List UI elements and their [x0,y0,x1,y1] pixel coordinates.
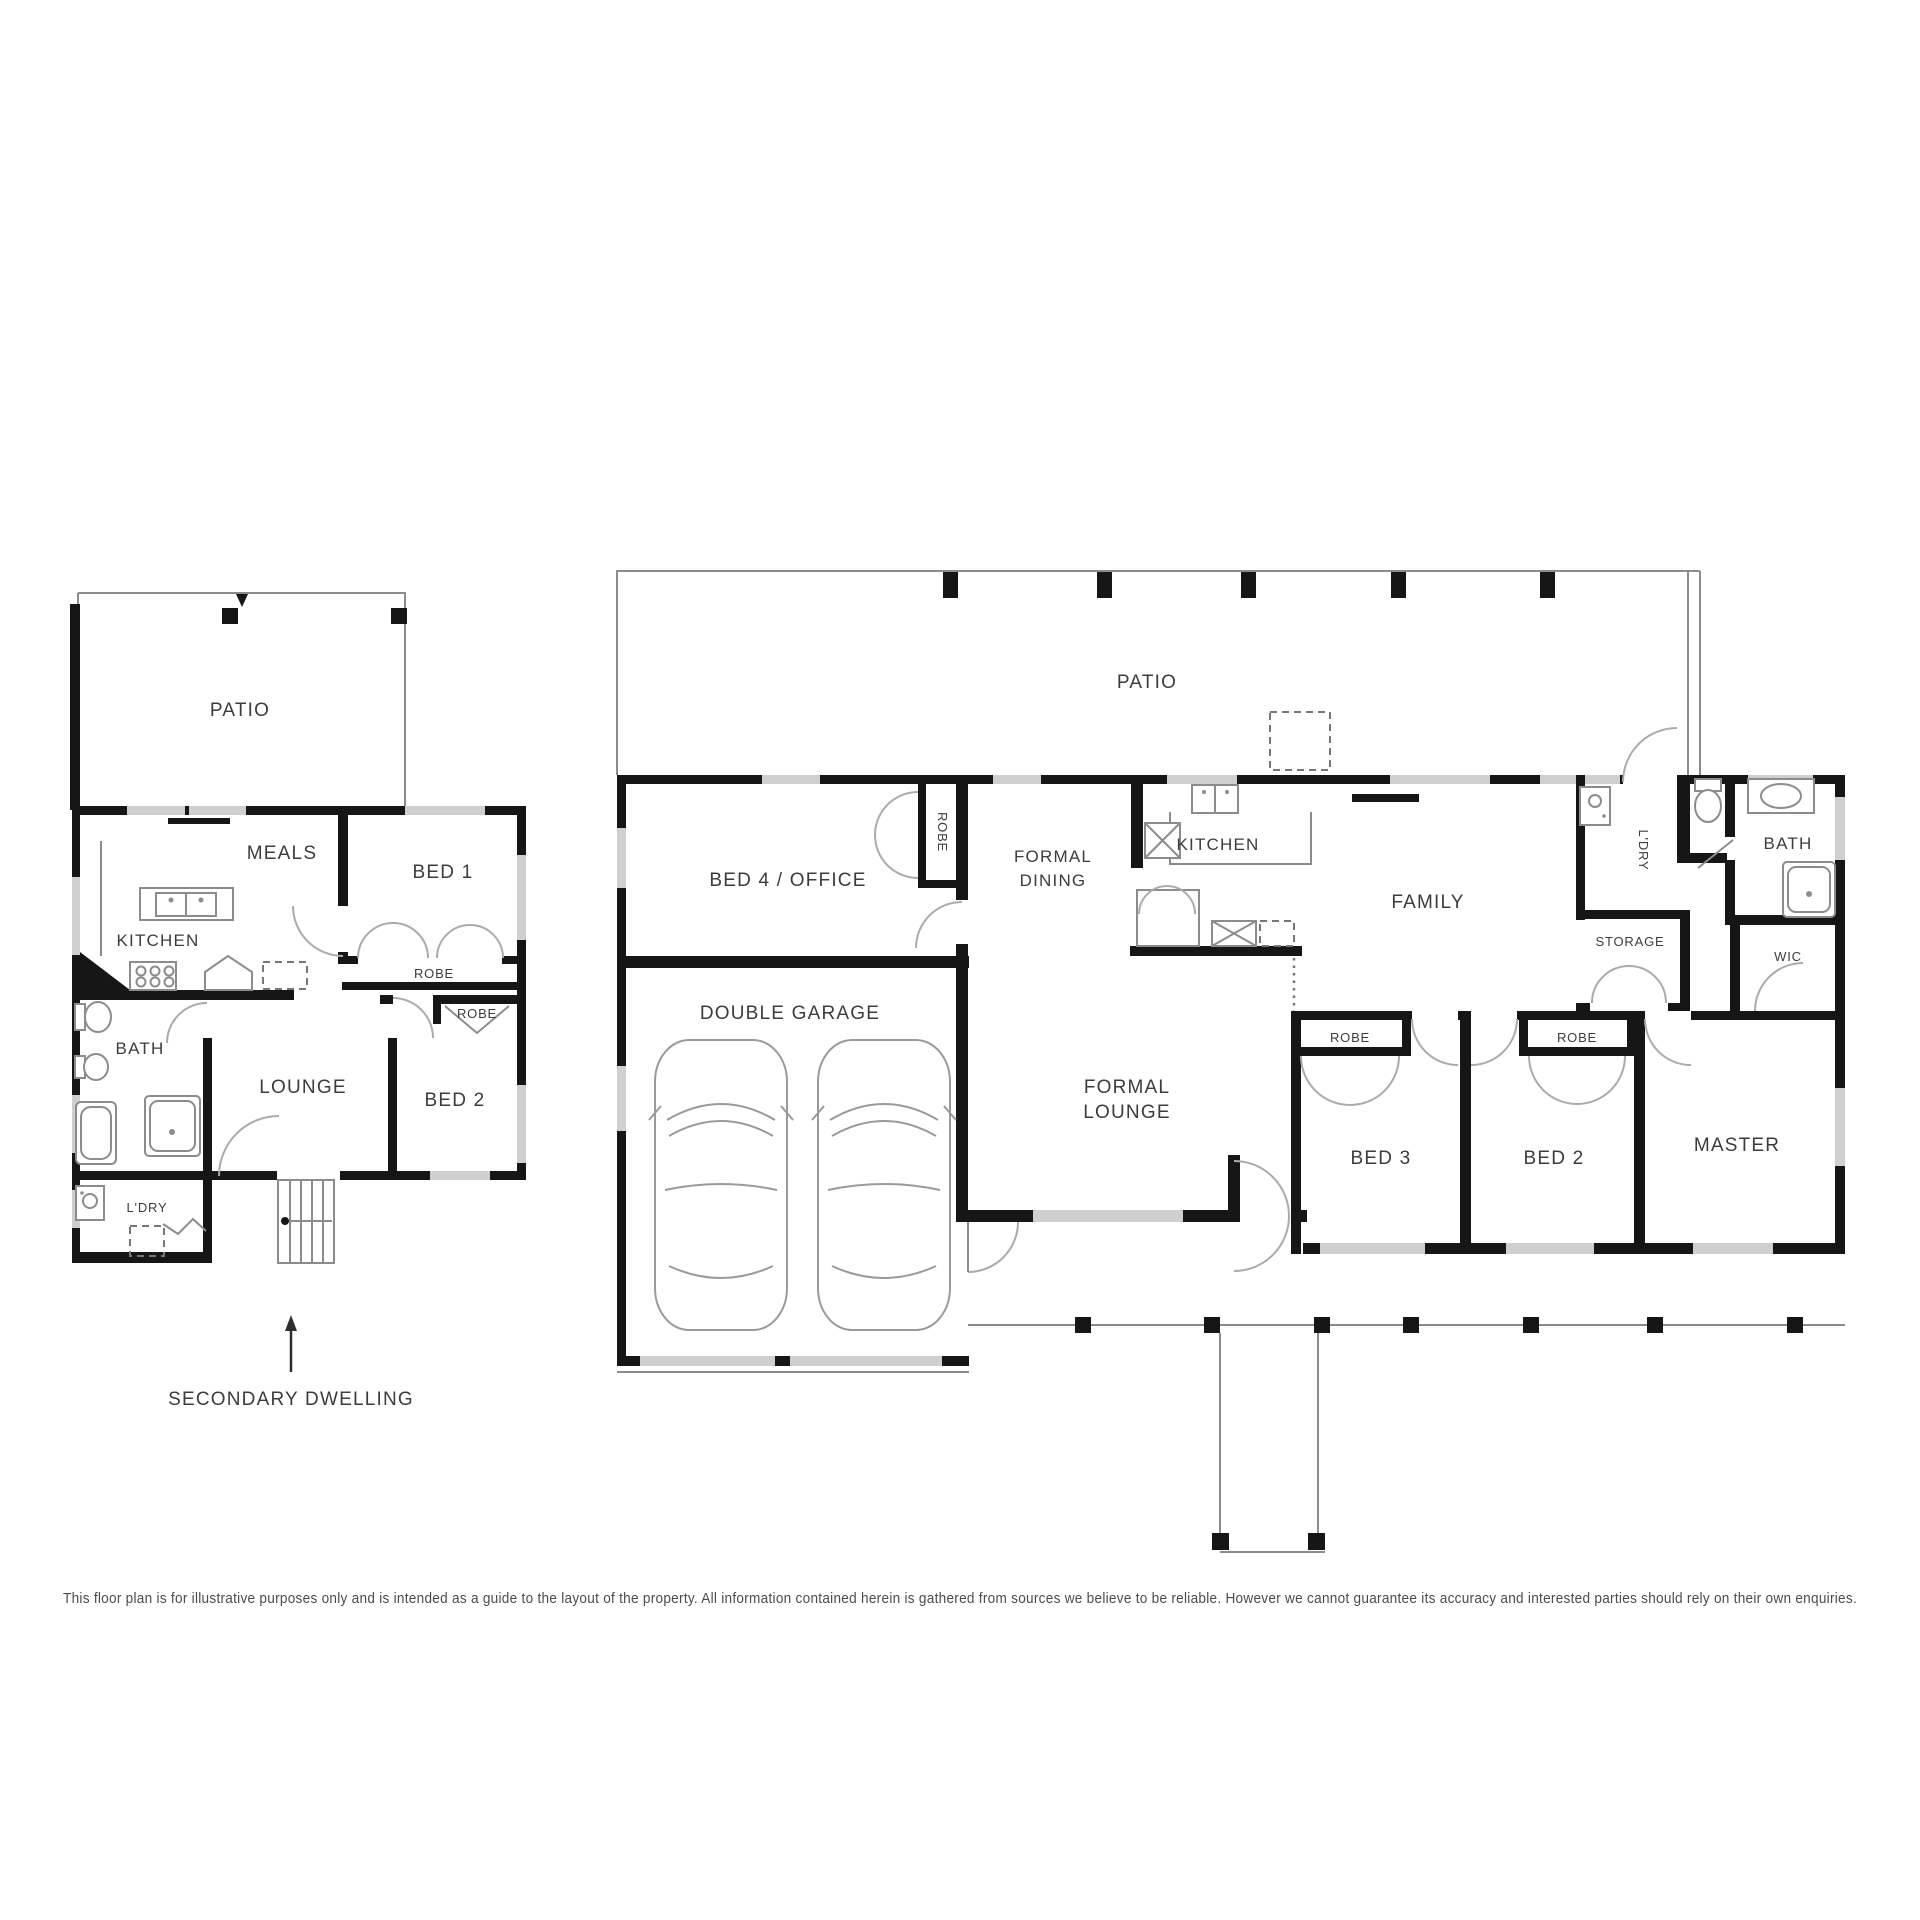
label-secondary-robe-bed2: ROBE [457,1006,497,1021]
label-main-formal-lounge-2: LOUNGE [1083,1102,1170,1123]
label-main-master: MASTER [1694,1135,1780,1156]
label-main-formal-lounge-1: FORMAL [1084,1077,1170,1098]
up-arrow-icon [285,1315,297,1331]
label-main-formal-dining-2: DINING [1020,871,1087,890]
label-main-laundry: L'DRY [1636,830,1651,871]
label-main-kitchen: KITCHEN [1176,835,1259,854]
label-main-robe-bed4: ROBE [935,812,950,852]
label-secondary-meals: MEALS [247,843,317,864]
label-main-robe-bed3: ROBE [1330,1030,1370,1045]
label-main-family: FAMILY [1391,892,1464,913]
label-secondary-bath: BATH [116,1039,165,1058]
label-secondary-robe-bed1: ROBE [414,966,454,981]
label-secondary-kitchen: KITCHEN [116,931,199,950]
label-main-storage: STORAGE [1596,934,1665,949]
secondary-caption: SECONDARY DWELLING [168,1315,414,1410]
garage-car-right [812,1040,956,1330]
label-main-wic: WIC [1774,949,1802,964]
label-main-patio: PATIO [1117,672,1177,693]
label-main-robe-bed2: ROBE [1557,1030,1597,1045]
label-main-bed2: BED 2 [1524,1148,1585,1169]
label-main-garage: DOUBLE GARAGE [700,1003,880,1024]
entry-arrow-icon [236,594,248,607]
main-dwelling: PATIO BED 4 / OFFICE ROBE FORMAL DINING … [617,571,1845,1552]
label-main-bath: BATH [1764,834,1813,853]
secondary-dwelling: PATIO MEALS BED 1 KITCHEN ROBE ROBE BATH… [70,593,526,1410]
disclaimer-text: This floor plan is for illustrative purp… [63,1590,1857,1607]
secondary-laundry-fixtures [76,1186,206,1256]
label-secondary-bed1: BED 1 [413,862,474,883]
floor-plan-drawing: PATIO MEALS BED 1 KITCHEN ROBE ROBE BATH… [0,0,1920,1920]
main-porch [968,1317,1845,1552]
label-main-bed4: BED 4 / OFFICE [709,870,866,891]
label-secondary-laundry: L'DRY [127,1200,168,1215]
label-main-formal-dining-1: FORMAL [1014,847,1092,866]
secondary-bath-fixtures [75,1002,200,1164]
secondary-doors [167,906,509,1176]
label-secondary-patio: PATIO [210,700,270,721]
main-doors [875,728,1803,1272]
label-main-bed3: BED 3 [1351,1148,1412,1169]
label-secondary-caption: SECONDARY DWELLING [168,1389,414,1410]
label-secondary-bed2: BED 2 [425,1090,486,1111]
main-laundry-fixtures [1580,787,1610,825]
garage-car-left [649,1040,793,1330]
floor-plan-page: PATIO MEALS BED 1 KITCHEN ROBE ROBE BATH… [0,0,1920,1920]
label-secondary-lounge: LOUNGE [259,1077,346,1098]
secondary-stairs [278,1180,334,1263]
